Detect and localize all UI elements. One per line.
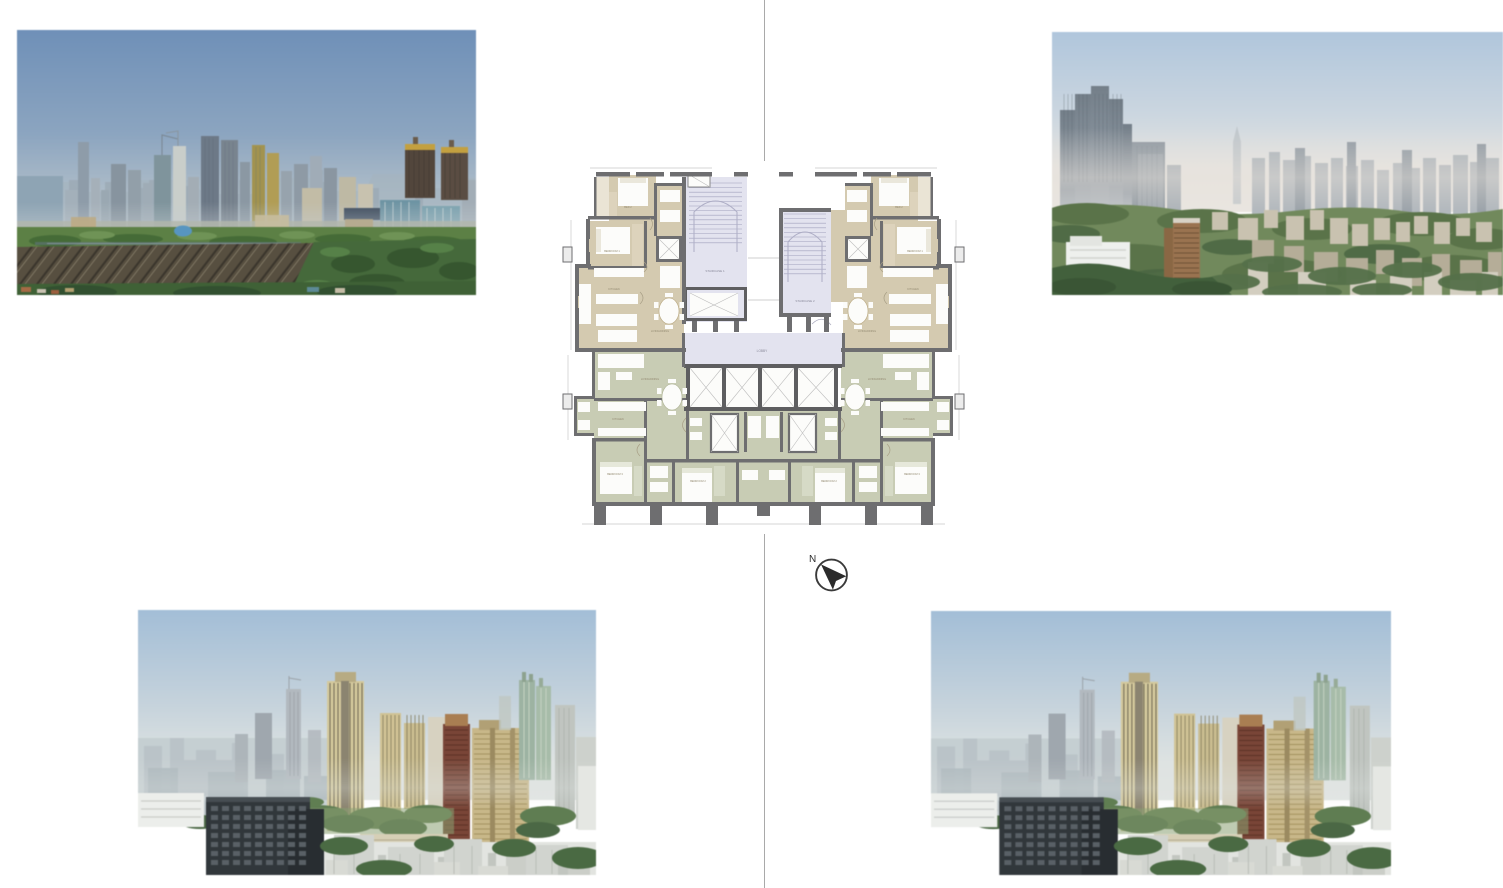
svg-text:BEDROOM 1: BEDROOM 1 bbox=[604, 249, 620, 253]
svg-text:STAIRCASE 1: STAIRCASE 1 bbox=[705, 269, 725, 273]
svg-text:KITCHEN: KITCHEN bbox=[903, 417, 915, 421]
svg-text:KITCHEN: KITCHEN bbox=[608, 287, 620, 291]
svg-text:LOBBY: LOBBY bbox=[757, 349, 769, 353]
svg-text:LIVING/DINING: LIVING/DINING bbox=[641, 377, 659, 381]
svg-text:BEDROOM 3: BEDROOM 3 bbox=[904, 472, 920, 476]
svg-text:BED 2: BED 2 bbox=[624, 205, 632, 209]
svg-text:BEDROOM 3: BEDROOM 3 bbox=[607, 472, 623, 476]
svg-text:LIVING/DINING: LIVING/DINING bbox=[868, 377, 886, 381]
svg-text:KITCHEN: KITCHEN bbox=[612, 417, 624, 421]
svg-text:LIVING/DINING: LIVING/DINING bbox=[858, 329, 876, 333]
svg-text:BEDROOM 2: BEDROOM 2 bbox=[821, 479, 837, 483]
svg-text:STAIRCASE 2: STAIRCASE 2 bbox=[795, 299, 815, 303]
svg-text:N: N bbox=[809, 554, 816, 565]
svg-text:BED 2: BED 2 bbox=[895, 205, 903, 209]
svg-text:LIVING/DINING: LIVING/DINING bbox=[651, 329, 669, 333]
svg-text:BEDROOM 1: BEDROOM 1 bbox=[907, 249, 923, 253]
svg-text:BEDROOM 2: BEDROOM 2 bbox=[690, 479, 706, 483]
svg-text:KITCHEN: KITCHEN bbox=[907, 287, 919, 291]
